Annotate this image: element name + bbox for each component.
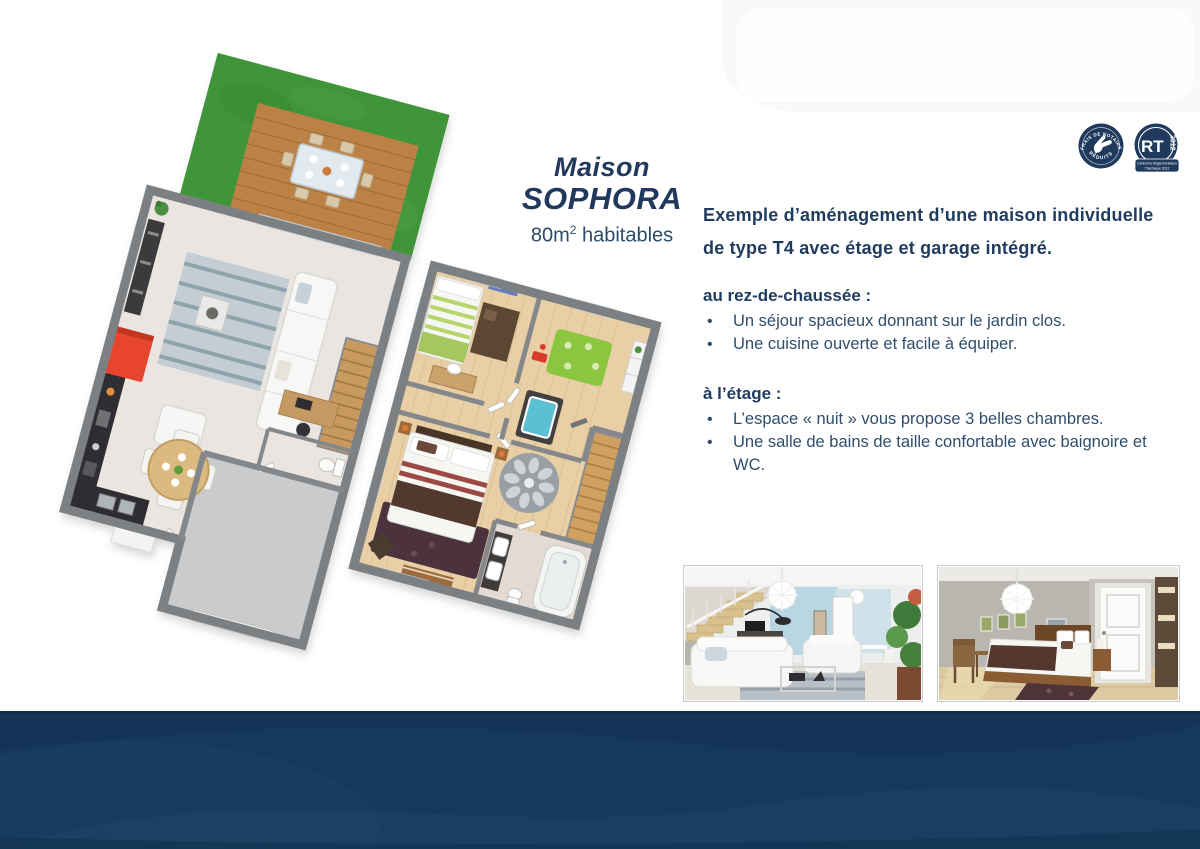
bullet-item: Une salle de bains de taille confortable…: [703, 431, 1177, 477]
section-first-floor: à l’étage : L’espace « nuit » vous propo…: [703, 383, 1177, 477]
title-area: 80m2 habitables: [518, 217, 686, 249]
description-column: Exemple d’aménagement d’une maison indiv…: [703, 199, 1177, 477]
footer-band: [0, 711, 1200, 849]
brochure-page: Maison SOPHORA 80m2 habitables FRAIS DE …: [0, 0, 1200, 849]
intro-line-1: Exemple d’aménagement d’une maison indiv…: [703, 199, 1177, 232]
intro-line-2: de type T4 avec étage et garage intégré.: [703, 232, 1177, 265]
bedroom-photo: [937, 565, 1180, 702]
notary-fees-badge: FRAIS DE NOTAIRE RÉDUITS: [1078, 123, 1124, 169]
svg-text:Conforme Réglementation: Conforme Réglementation: [1137, 162, 1177, 166]
intro-paragraph: Exemple d’aménagement d’une maison indiv…: [703, 199, 1177, 265]
certification-badges: FRAIS DE NOTAIRE RÉDUITS RT 2012 Conform…: [1078, 123, 1188, 175]
living-room-photo: [683, 565, 923, 702]
section-ground-floor: au rez-de-chaussée : Un séjour spacieux …: [703, 285, 1177, 356]
top-right-card-shape: [736, 8, 1194, 102]
svg-text:Thermique 2012: Thermique 2012: [1145, 167, 1170, 171]
bullet-item: L’espace « nuit » vous propose 3 belles …: [703, 408, 1177, 431]
section-heading: à l’étage :: [703, 383, 1177, 405]
rt-badge-main-text: RT: [1141, 137, 1164, 156]
rt-badge-year-text: 2012: [1169, 135, 1176, 151]
top-right-tint-shape: [722, 0, 1200, 112]
bullet-item: Un séjour spacieux donnant sur le jardin…: [703, 310, 1177, 333]
section-heading: au rez-de-chaussée :: [703, 285, 1177, 307]
title-sophora: SOPHORA: [518, 182, 686, 216]
rt-badge-banner: Conforme Réglementation Thermique 2012: [1135, 159, 1179, 172]
rt-2012-badge: RT 2012 Conforme Réglementation Thermiqu…: [1130, 123, 1184, 175]
title-block: Maison SOPHORA 80m2 habitables: [518, 152, 686, 249]
bullet-list: Un séjour spacieux donnant sur le jardin…: [703, 310, 1177, 356]
bullet-item: Une cuisine ouverte et facile à équiper.: [703, 333, 1177, 356]
title-maison: Maison: [518, 152, 686, 182]
floor-plans-illustration: [0, 0, 690, 700]
bullet-list: L’espace « nuit » vous propose 3 belles …: [703, 408, 1177, 477]
